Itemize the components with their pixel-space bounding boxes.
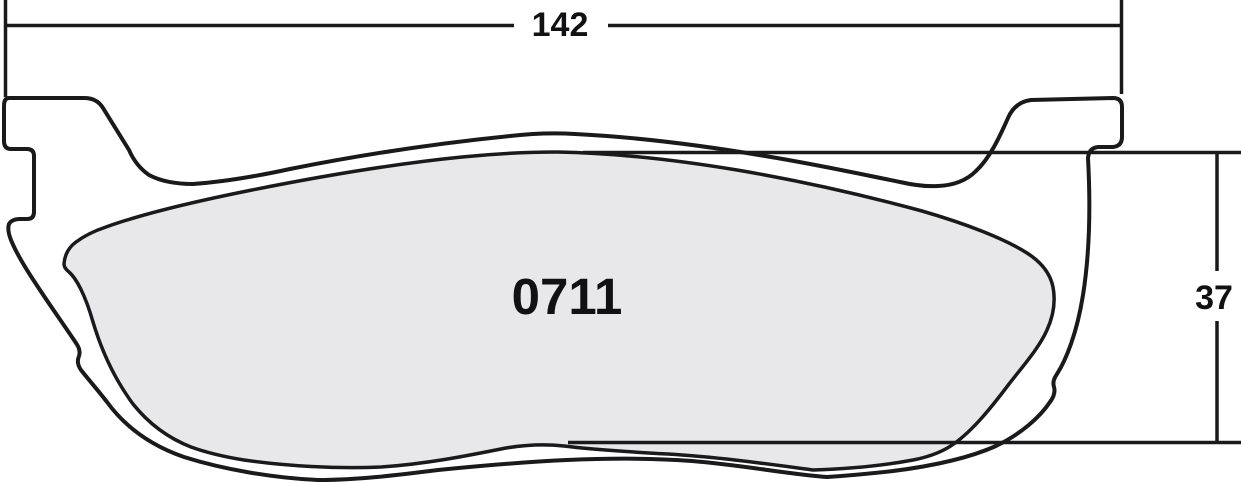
brake-pad-technical-drawing: 142 37 0711 (0, 0, 1241, 482)
part-number-label: 0711 (512, 268, 623, 325)
height-dimension-label: 37 (1195, 279, 1233, 317)
diagram-svg: 142 37 0711 (0, 0, 1241, 482)
width-dimension-label: 142 (532, 6, 589, 44)
